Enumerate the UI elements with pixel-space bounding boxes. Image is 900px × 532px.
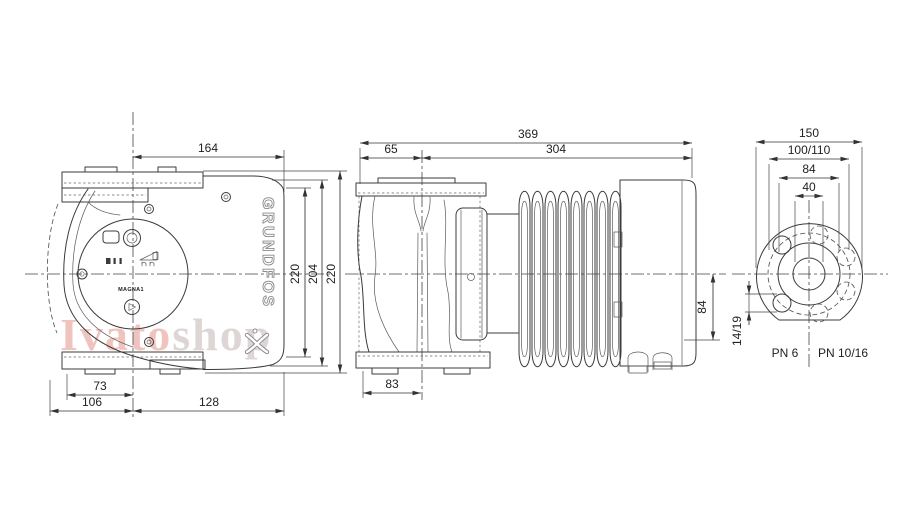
mode-bars-icon xyxy=(106,258,122,264)
grundfos-x-icon xyxy=(247,335,267,352)
technical-drawing-page: Ivatoshop xyxy=(0,0,900,532)
flange-view: 150 100/110 84 40 xyxy=(730,126,888,368)
svg-text:369: 369 xyxy=(518,127,538,141)
side-top-flange xyxy=(356,178,486,196)
side-bottom-foot xyxy=(356,352,490,374)
svg-text:164: 164 xyxy=(198,141,218,155)
dim-128: 128 xyxy=(133,372,284,416)
display-icon xyxy=(103,231,119,243)
svg-text:73: 73 xyxy=(93,379,107,393)
curve-pointer-icon xyxy=(140,252,158,267)
front-bottom-flange xyxy=(62,352,205,374)
svg-text:83: 83 xyxy=(385,377,399,391)
svg-text:100/110: 100/110 xyxy=(788,143,831,157)
svg-text:84: 84 xyxy=(802,162,816,176)
flange-outer-contour xyxy=(757,224,863,320)
screw-icon-top-right xyxy=(222,193,231,202)
svg-text:220: 220 xyxy=(288,264,302,284)
pn1016-label: PN 10/16 xyxy=(818,346,868,360)
svg-text:65: 65 xyxy=(384,142,398,156)
svg-text:40: 40 xyxy=(802,180,816,194)
screw-icons xyxy=(77,193,231,347)
svg-text:150: 150 xyxy=(799,126,819,140)
pn6-label: PN 6 xyxy=(772,346,799,360)
dim-14-19: 14/19 xyxy=(730,281,777,346)
svg-text:204: 204 xyxy=(306,264,320,284)
model-label: MAGNA1 xyxy=(118,287,144,293)
svg-text:128: 128 xyxy=(199,395,219,409)
top-button-icon xyxy=(124,230,141,247)
svg-text:106: 106 xyxy=(82,395,102,409)
bottom-button-icon xyxy=(125,300,140,315)
dim-304: 304 xyxy=(422,142,692,158)
clamp-screw-icon xyxy=(468,274,475,281)
logo-dot xyxy=(253,329,257,333)
pump-dimensional-drawing: MAGNA1 GRUNDFOS xyxy=(0,0,900,532)
dim-83: 83 xyxy=(363,371,421,398)
dim-84-side: 84 xyxy=(684,274,720,340)
grundfos-logo: GRUNDFOS xyxy=(259,197,276,309)
dim-369: 369 xyxy=(360,127,692,184)
screw-icon-top xyxy=(145,205,154,214)
cable-gland-icons xyxy=(628,352,672,373)
dim-65: 65 xyxy=(360,142,422,158)
front-view: MAGNA1 GRUNDFOS xyxy=(25,112,347,418)
control-panel: MAGNA1 xyxy=(103,230,158,315)
svg-text:220: 220 xyxy=(324,264,338,284)
front-control-box-outline xyxy=(47,176,284,370)
dim-106: 106 xyxy=(50,380,133,416)
svg-text:84: 84 xyxy=(695,300,709,314)
svg-text:304: 304 xyxy=(546,142,566,156)
svg-text:14/19: 14/19 xyxy=(730,316,744,346)
terminal-box xyxy=(614,180,696,373)
dim-164: 164 xyxy=(133,141,284,192)
side-view: 369 65 304 84 83 xyxy=(345,127,726,400)
motor-cooling-fins xyxy=(519,191,621,367)
screw-icon-bottom xyxy=(145,338,154,347)
